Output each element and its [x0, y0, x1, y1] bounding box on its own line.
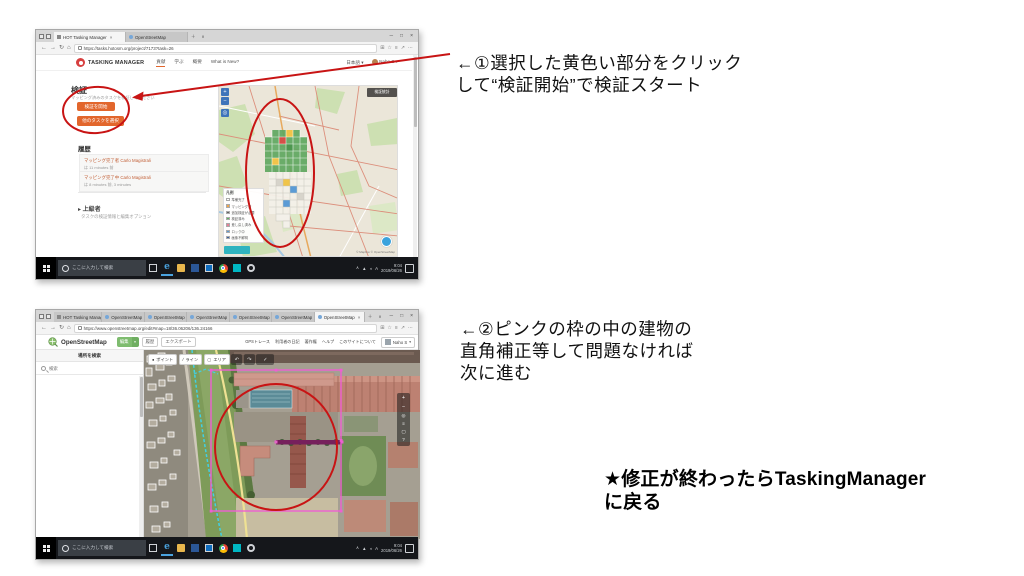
mail-icon[interactable] [203, 260, 215, 276]
edit-button[interactable]: 編集 [117, 337, 132, 347]
start-button[interactable] [36, 537, 56, 559]
tm-language-select[interactable]: 日本語 ▾ [346, 60, 363, 66]
legend-label: マッピング済 [232, 204, 252, 209]
history-text: マッピング完了者 Carlo Magistrali [84, 158, 204, 164]
osm-nav-user-diaries[interactable]: 利用者の日記 [275, 339, 300, 345]
hub-icon[interactable]: ≡ [395, 325, 398, 331]
legend-label: 画像不鮮明 [232, 235, 248, 240]
legend-swatch [226, 217, 230, 220]
browser-window-tasking-manager: HOT Tasking Manager × OpenStreetMap ＋ ∨ … [35, 29, 419, 280]
windows-taskbar: ここに入力して検索 e ∧ ▲ ◖ A 9:042019/06/26 [36, 537, 418, 559]
aerial-imagery [144, 350, 420, 539]
cortana-icon [62, 265, 69, 272]
legend-swatch [226, 223, 230, 226]
chrome-icon[interactable] [217, 540, 229, 556]
osm-user-menu[interactable]: Naho S▾ [381, 337, 415, 348]
more-options-icon[interactable]: ⋯ [408, 325, 413, 331]
window-close-button[interactable]: × [410, 33, 413, 39]
legend-label: 追加検証が必要 [232, 210, 255, 215]
favorite-star-icon[interactable]: ☆ [387, 325, 391, 331]
history-item[interactable]: マッピング完了中 Carlo Magistrali は 8 minutes 前,… [79, 171, 209, 192]
tray-volume-icon[interactable]: ◖ [369, 546, 372, 551]
tab-strip: HOT Tasking Manager × OpenStreetMap ＋ ∨ … [36, 30, 418, 42]
window-maximize-button[interactable]: □ [400, 33, 403, 39]
taskbar-search-placeholder: ここに入力して検索 [72, 545, 113, 551]
geolocate-icon[interactable]: ◎ [402, 414, 406, 419]
store-icon[interactable] [231, 260, 243, 276]
tab-openstreetmap[interactable]: OpenStreetMap [102, 312, 145, 322]
history-text: マッピング完了中 Carlo Magistrali [84, 175, 204, 181]
area-icon: ▢ [208, 357, 212, 362]
address-bar: ← → ↻ ⌂ https://www.openstreetmap.org/ed… [36, 322, 418, 335]
map-data-icon[interactable]: ▢ [401, 430, 405, 435]
cortana-icon [62, 545, 69, 552]
locate-button[interactable]: ◎ [221, 109, 229, 117]
zoom-out-button[interactable]: − [402, 405, 405, 411]
hub-icon[interactable]: ≡ [395, 45, 398, 51]
advanced-section-toggle[interactable]: ▸ 上級者 [78, 204, 101, 213]
settings-gear-icon[interactable] [245, 260, 257, 276]
tasks-map-canvas[interactable]: + − ◎ 検証統計 凡例 準備完了 マッピング済 追加検証が必要 検証済み 差… [218, 85, 398, 257]
edge-tab-tools[interactable] [36, 30, 54, 42]
tab-openstreetmap[interactable]: OpenStreetMap [126, 32, 188, 42]
history-meta: は 8 minutes 前, 3 minutes [84, 182, 204, 188]
edit-dropdown-caret-icon[interactable]: ▾ [132, 337, 139, 347]
window-minimize-button[interactable]: ─ [390, 33, 394, 39]
start-validation-button[interactable]: 検証を開始 [77, 102, 115, 111]
taskbar-clock[interactable]: 9:042019/06/26 [381, 263, 402, 274]
osm-site-header: OpenStreetMap 編集 ▾ 履歴 エクスポート GPSトレース 利用者… [36, 335, 418, 350]
undo-button[interactable]: ↶ [231, 354, 242, 365]
store-icon[interactable] [231, 540, 243, 556]
export-button[interactable]: エクスポート [161, 337, 195, 347]
taskbar-clock[interactable]: 9:042019/06/26 [381, 543, 402, 554]
search-input[interactable] [49, 366, 119, 371]
legend-label: 差し戻し済み [232, 222, 252, 227]
osm-nav-help[interactable]: ヘルプ [322, 339, 334, 345]
start-button[interactable] [36, 257, 56, 279]
lock-icon [78, 46, 82, 50]
taskbar-search-box[interactable]: ここに入力して検索 [58, 540, 146, 556]
mapbox-logo-icon[interactable] [381, 236, 392, 247]
zoom-in-button[interactable]: + [402, 396, 405, 402]
sidebar-title: 場所を検索 [36, 350, 143, 362]
back-icon[interactable]: ← [41, 325, 47, 331]
tm-nav-whats-new[interactable]: What is New? [211, 59, 239, 67]
tab-openstreetmap[interactable]: OpenStreetMap [230, 312, 273, 322]
map-legend: 凡例 準備完了 マッピング済 追加検証が必要 検証済み 差し戻し済み ロック中 … [223, 188, 264, 243]
tab-list-chevron-icon[interactable]: ∨ [375, 312, 384, 322]
edge-tab-tools[interactable] [36, 310, 54, 322]
task-view-icon[interactable] [147, 540, 159, 556]
draw-point-button[interactable]: ●ポイント [148, 354, 177, 365]
draw-line-button[interactable]: ∕ライン [179, 354, 202, 365]
tm-brand[interactable]: TASKING MANAGER [88, 60, 144, 66]
lock-icon [78, 326, 82, 330]
window-maximize-button[interactable]: □ [400, 313, 403, 319]
legend-swatch [226, 211, 230, 214]
ime-indicator[interactable]: A [375, 266, 378, 271]
id-editor-map-canvas[interactable]: ●ポイント ∕ライン ▢エリア ↶ ↷ ✓ + − ◎ ≡ ▢ ? [144, 350, 420, 539]
tm-site-header: TASKING MANAGER 貢献 学ぶ 概要 What is New? 日本… [36, 55, 412, 71]
legend-swatch [226, 230, 230, 233]
window-close-button[interactable]: × [410, 313, 413, 319]
annotation-step1: ←①選択した黄色い部分をクリック して“検証開始”で検証スタート [456, 52, 742, 96]
sidebar-scrollbar[interactable] [139, 376, 143, 538]
osm-brand[interactable]: OpenStreetMap [61, 339, 107, 346]
url-text: https://tasks.hotosm.org/project/7173?ta… [84, 46, 174, 51]
tab-label: OpenStreetMap [135, 35, 166, 40]
new-tab-button[interactable]: ＋ [188, 32, 198, 42]
background-layers-icon[interactable]: ≡ [402, 422, 405, 427]
advanced-subtext: タスクの検証情報と編集オプション [81, 214, 151, 220]
history-button[interactable]: 履歴 [142, 337, 159, 347]
search-icon [41, 366, 46, 371]
page-scrollbar[interactable] [413, 55, 417, 259]
tab-close-icon[interactable]: × [358, 315, 361, 320]
home-icon[interactable]: ⌂ [67, 325, 71, 331]
legend-label: 準備完了 [232, 197, 245, 202]
tm-nav-learn[interactable]: 学ぶ [174, 59, 183, 67]
settings-gear-icon[interactable] [245, 540, 257, 556]
taskbar-search-box[interactable]: ここに入力して検索 [58, 260, 146, 276]
chrome-icon[interactable] [217, 260, 229, 276]
osm-nav-copyright[interactable]: 著作権 [305, 339, 317, 345]
file-explorer-icon[interactable] [175, 540, 187, 556]
line-icon: ∕ [183, 357, 184, 362]
action-center-icon[interactable] [405, 264, 414, 273]
taskbar-search-placeholder: ここに入力して検索 [72, 265, 113, 271]
annotation-return-note: ★修正が終わったらTaskingManager に戻る [604, 468, 926, 514]
windows-taskbar: ここに入力して検索 e ∧ ▲ ◖ A 9:042019/06/26 [36, 257, 418, 279]
legend-swatch [226, 236, 230, 239]
help-icon[interactable]: ? [402, 438, 405, 443]
history-title: 履歴 [78, 144, 91, 153]
annotation-step2: ←②ピンクの枠の中の建物の 直角補正等して問題なければ 次に進む [460, 318, 693, 385]
favorite-star-icon[interactable]: ☆ [387, 45, 391, 51]
share-icon[interactable]: ↗ [401, 45, 405, 51]
tray-volume-icon[interactable]: ◖ [369, 266, 372, 271]
url-field[interactable]: https://www.openstreetmap.org/edit#map=1… [74, 324, 378, 333]
search-row[interactable] [36, 362, 143, 375]
tab-openstreetmap[interactable]: OpenStreetMap [272, 312, 315, 322]
avatar [372, 59, 378, 65]
photos-icon[interactable] [189, 260, 201, 276]
osm-nav-gps-traces[interactable]: GPSトレース [245, 339, 270, 345]
map-action-button[interactable] [224, 246, 250, 254]
edge-taskbar-icon[interactable]: e [161, 540, 173, 556]
url-text: https://www.openstreetmap.org/edit#map=1… [84, 326, 213, 331]
tm-nav-contribute[interactable]: 貢献 [156, 59, 165, 67]
draw-area-button[interactable]: ▢エリア [204, 354, 230, 365]
legend-title: 凡例 [226, 191, 261, 196]
forward-icon[interactable]: → [50, 325, 56, 331]
avatar [385, 339, 391, 345]
tray-chevron-icon[interactable]: ∧ [356, 545, 359, 551]
tray-chevron-icon[interactable]: ∧ [356, 265, 359, 271]
zoom-out-button[interactable]: − [221, 97, 229, 105]
forward-icon[interactable]: → [50, 45, 56, 51]
id-map-controls: + − ◎ ≡ ▢ ? [397, 393, 410, 446]
panel-subtitle: マッピング済みのタスクを検証してください [71, 95, 191, 101]
tm-nav-about[interactable]: 概要 [193, 59, 202, 67]
refresh-icon[interactable]: ↻ [59, 325, 64, 331]
home-icon[interactable]: ⌂ [67, 45, 71, 51]
reading-mode-icon[interactable]: ⊞ [380, 45, 384, 51]
tab-hot-tasking-manager[interactable]: HOT Tasking Manager × [54, 32, 126, 42]
save-button[interactable]: ✓ [256, 354, 274, 365]
tasking-manager-logo-icon[interactable] [76, 58, 85, 67]
browser-window-openstreetmap: HOT Tasking Manage OpenStreetMap OpenStr… [35, 309, 419, 560]
tab-hot-tasking-manager[interactable]: HOT Tasking Manage [54, 312, 102, 322]
task-view-icon[interactable] [147, 260, 159, 276]
action-center-icon[interactable] [405, 544, 414, 553]
tab-favicon [57, 35, 61, 39]
map-attribution: © Mapbox © OpenStreetMap [356, 250, 395, 254]
back-icon[interactable]: ← [41, 45, 47, 51]
window-minimize-button[interactable]: ─ [390, 313, 394, 319]
openstreetmap-logo-icon[interactable] [48, 337, 58, 347]
tab-openstreetmap[interactable]: OpenStreetMap [145, 312, 188, 322]
tm-user-menu[interactable]: Naho S ▾ [372, 59, 398, 65]
select-another-task-button[interactable]: 他のタスクを選択 [77, 116, 124, 126]
tab-close-icon[interactable]: × [110, 35, 113, 40]
id-draw-toolbar: ●ポイント ∕ライン ▢エリア ↶ ↷ ✓ [148, 354, 274, 365]
tab-openstreetmap-active[interactable]: OpenStreetMap× [315, 312, 365, 322]
tray-network-icon[interactable]: ▲ [362, 266, 366, 271]
legend-swatch [226, 198, 230, 201]
divider [78, 192, 206, 193]
point-icon: ● [152, 357, 154, 362]
address-bar: ← → ↻ ⌂ https://tasks.hotosm.org/project… [36, 42, 418, 55]
tab-strip: HOT Tasking Manage OpenStreetMap OpenStr… [36, 310, 418, 322]
ime-indicator[interactable]: A [375, 546, 378, 551]
tray-network-icon[interactable]: ▲ [362, 546, 366, 551]
new-tab-button[interactable]: ＋ [365, 312, 375, 322]
edge-taskbar-icon[interactable]: e [161, 260, 173, 276]
osm-sidebar: 場所を検索 [36, 350, 144, 539]
url-field[interactable]: https://tasks.hotosm.org/project/7173?ta… [74, 44, 378, 53]
legend-label: 検証済み [232, 216, 245, 221]
tab-label: HOT Tasking Manager [63, 35, 107, 40]
osm-nav-about[interactable]: このサイトについて [339, 339, 376, 345]
share-icon[interactable]: ↗ [401, 325, 405, 331]
reading-mode-icon[interactable]: ⊞ [380, 325, 384, 331]
tab-favicon [129, 35, 133, 39]
slide-canvas: { "annotations": { "note1_line1": "←①選択し… [0, 0, 1024, 576]
tab-openstreetmap[interactable]: OpenStreetMap [187, 312, 230, 322]
zoom-in-button[interactable]: + [221, 88, 229, 96]
redo-button[interactable]: ↷ [244, 354, 255, 365]
file-explorer-icon[interactable] [175, 260, 187, 276]
refresh-icon[interactable]: ↻ [59, 45, 64, 51]
map-stats-button[interactable]: 検証統計 [367, 88, 397, 97]
tab-list-chevron-icon[interactable]: ∨ [198, 32, 207, 42]
photos-icon[interactable] [189, 540, 201, 556]
mail-icon[interactable] [203, 540, 215, 556]
legend-label: ロック中 [232, 229, 245, 234]
legend-swatch [226, 204, 230, 207]
more-options-icon[interactable]: ⋯ [408, 45, 413, 51]
